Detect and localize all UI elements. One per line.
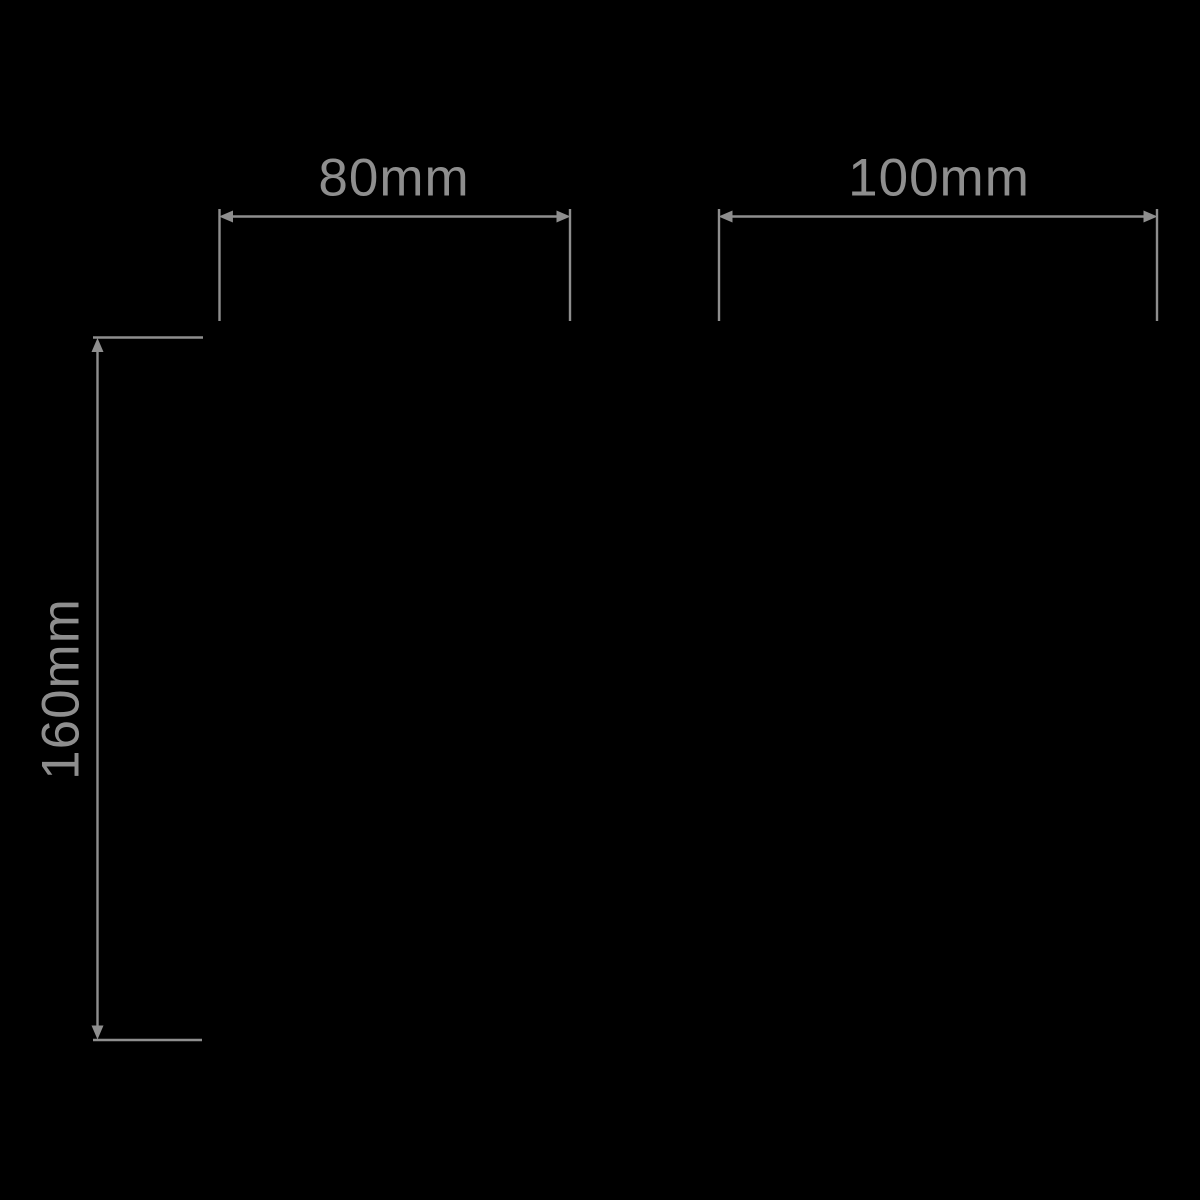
- dim-80mm-arrow-right-icon: [557, 211, 571, 223]
- dim-label-100mm: 100mm: [848, 152, 1030, 205]
- dim-100mm: [719, 209, 1158, 321]
- dim-160mm: [92, 338, 204, 1041]
- dim-label-160mm: 160mm: [35, 598, 88, 780]
- dim-100mm-arrow-right-icon: [1144, 211, 1158, 223]
- dimension-diagram: 80mm 100mm 160mm: [0, 0, 1200, 1200]
- dim-80mm-arrow-left-icon: [219, 211, 233, 223]
- dim-80mm: [219, 209, 571, 321]
- dim-160mm-arrow-bottom-icon: [92, 1026, 104, 1040]
- dim-label-80mm: 80mm: [318, 152, 469, 205]
- dim-100mm-arrow-left-icon: [719, 211, 733, 223]
- dim-160mm-arrow-top-icon: [92, 338, 104, 352]
